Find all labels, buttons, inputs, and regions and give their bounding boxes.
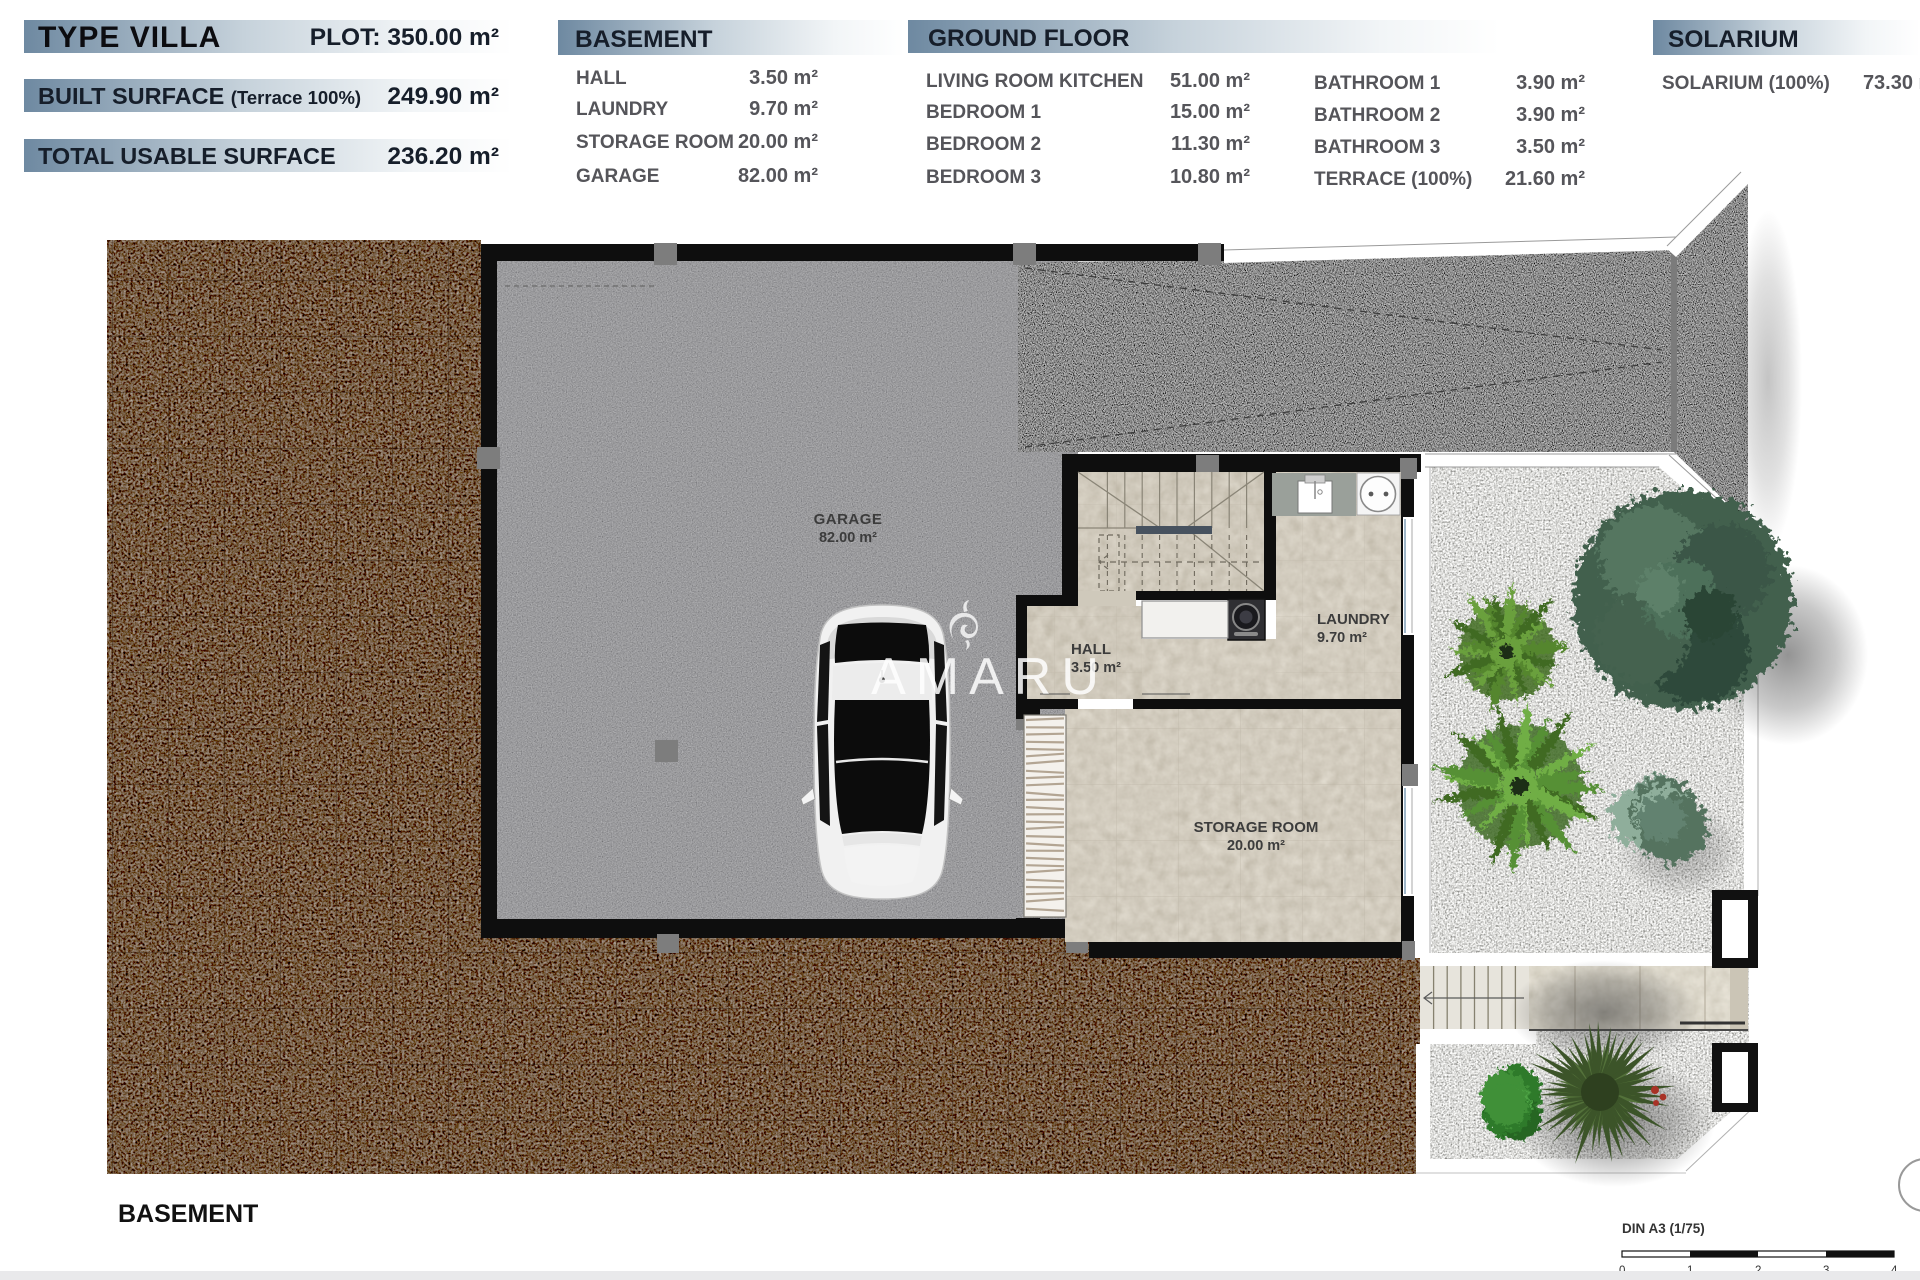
svg-text:236.20 m²: 236.20 m² <box>387 143 499 170</box>
svg-text:3.50 m²: 3.50 m² <box>1516 136 1585 158</box>
svg-text:3.90 m²: 3.90 m² <box>1516 104 1585 126</box>
svg-text:73.30 m²: 73.30 m² <box>1863 72 1920 94</box>
svg-text:82.00 m²: 82.00 m² <box>819 530 877 546</box>
svg-text:11.30 m²: 11.30 m² <box>1171 133 1250 155</box>
svg-text:DIN A3 (1/75): DIN A3 (1/75) <box>1622 1221 1705 1236</box>
svg-text:LIVING ROOM KITCHEN: LIVING ROOM KITCHEN <box>926 71 1143 92</box>
svg-text:BASEMENT: BASEMENT <box>575 26 713 53</box>
svg-text:STORAGE ROOM: STORAGE ROOM <box>1194 819 1319 836</box>
svg-text:82.00 m²: 82.00 m² <box>738 165 818 187</box>
svg-text:BUILT SURFACE (Terrace 100%): BUILT SURFACE (Terrace 100%) <box>38 83 361 109</box>
svg-text:BEDROOM 1: BEDROOM 1 <box>926 102 1042 123</box>
svg-text:BATHROOM 1: BATHROOM 1 <box>1314 73 1441 94</box>
svg-text:GARAGE: GARAGE <box>814 511 883 528</box>
svg-text:9.70 m²: 9.70 m² <box>1317 630 1367 646</box>
svg-text:LAUNDRY: LAUNDRY <box>1317 611 1390 628</box>
svg-text:15.00 m²: 15.00 m² <box>1170 101 1250 123</box>
svg-text:10.80 m²: 10.80 m² <box>1170 166 1250 188</box>
svg-text:BEDROOM 2: BEDROOM 2 <box>926 134 1041 155</box>
svg-text:3.50 m²: 3.50 m² <box>749 67 818 89</box>
svg-text:TERRACE (100%): TERRACE (100%) <box>1314 169 1472 190</box>
svg-text:SOLARIUM: SOLARIUM <box>1668 26 1799 53</box>
svg-text:20.00 m²: 20.00 m² <box>1227 838 1285 854</box>
svg-text:BATHROOM 2: BATHROOM 2 <box>1314 105 1440 126</box>
svg-text:BASEMENT: BASEMENT <box>118 1200 258 1228</box>
svg-text:GROUND FLOOR: GROUND FLOOR <box>928 25 1130 52</box>
svg-text:TYPE VILLA: TYPE VILLA <box>38 21 221 54</box>
svg-text:TOTAL USABLE SURFACE: TOTAL USABLE SURFACE <box>38 143 336 169</box>
svg-text:PLOT: 350.00 m²: PLOT: 350.00 m² <box>310 24 499 51</box>
svg-text:HALL: HALL <box>576 68 627 89</box>
svg-text:GARAGE: GARAGE <box>576 166 659 187</box>
svg-text:SOLARIUM (100%): SOLARIUM (100%) <box>1662 73 1830 94</box>
svg-text:51.00 m²: 51.00 m² <box>1170 70 1250 92</box>
svg-text:9.70 m²: 9.70 m² <box>749 98 818 120</box>
svg-text:20.00 m²: 20.00 m² <box>738 131 818 153</box>
svg-text:BATHROOM 3: BATHROOM 3 <box>1314 137 1440 158</box>
svg-text:249.90 m²: 249.90 m² <box>387 83 499 110</box>
svg-text:BEDROOM 3: BEDROOM 3 <box>926 167 1041 188</box>
svg-text:STORAGE ROOM: STORAGE ROOM <box>576 132 734 153</box>
svg-text:LAUNDRY: LAUNDRY <box>576 99 669 120</box>
svg-text:21.60 m²: 21.60 m² <box>1505 168 1585 190</box>
svg-text:3.90 m²: 3.90 m² <box>1516 72 1585 94</box>
svg-text:AMARU: AMARU <box>871 648 1109 706</box>
